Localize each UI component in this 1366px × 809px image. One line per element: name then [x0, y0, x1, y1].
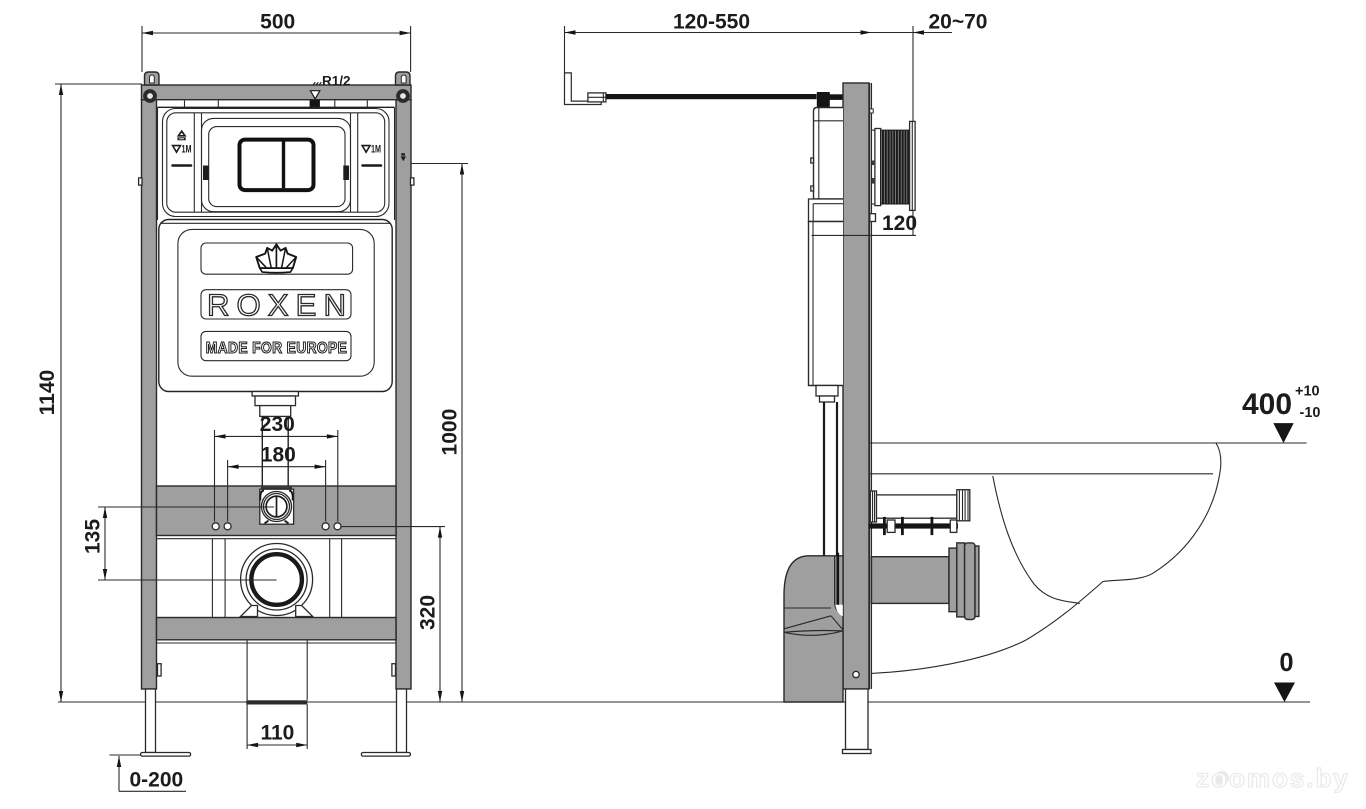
svg-text:320: 320: [416, 595, 439, 630]
svg-text:120-550: 120-550: [673, 10, 750, 33]
svg-text:0-200: 0-200: [130, 768, 184, 791]
svg-text:0: 0: [1279, 649, 1293, 677]
svg-text:1M: 1M: [371, 144, 381, 156]
svg-text:400: 400: [1242, 388, 1292, 421]
svg-text:135: 135: [81, 519, 104, 554]
svg-text:MADE FOR EUROPE: MADE FOR EUROPE: [206, 340, 348, 357]
svg-text:ROXEN: ROXEN: [207, 288, 353, 323]
svg-text:110: 110: [260, 722, 294, 745]
svg-text:1M: 1M: [182, 144, 192, 156]
svg-text:20~70: 20~70: [929, 11, 988, 34]
svg-text:500: 500: [260, 10, 295, 33]
svg-text:120: 120: [882, 212, 917, 235]
svg-text:230: 230: [260, 413, 295, 436]
svg-text:R1/2: R1/2: [322, 73, 351, 88]
svg-text:+10: +10: [1295, 384, 1320, 400]
svg-text:1140: 1140: [36, 370, 59, 416]
svg-text:-10: -10: [1300, 405, 1321, 421]
svg-text:1000: 1000: [438, 409, 461, 456]
svg-text:180: 180: [261, 444, 296, 467]
svg-text:zoomos.by: zoomos.by: [1196, 763, 1350, 793]
